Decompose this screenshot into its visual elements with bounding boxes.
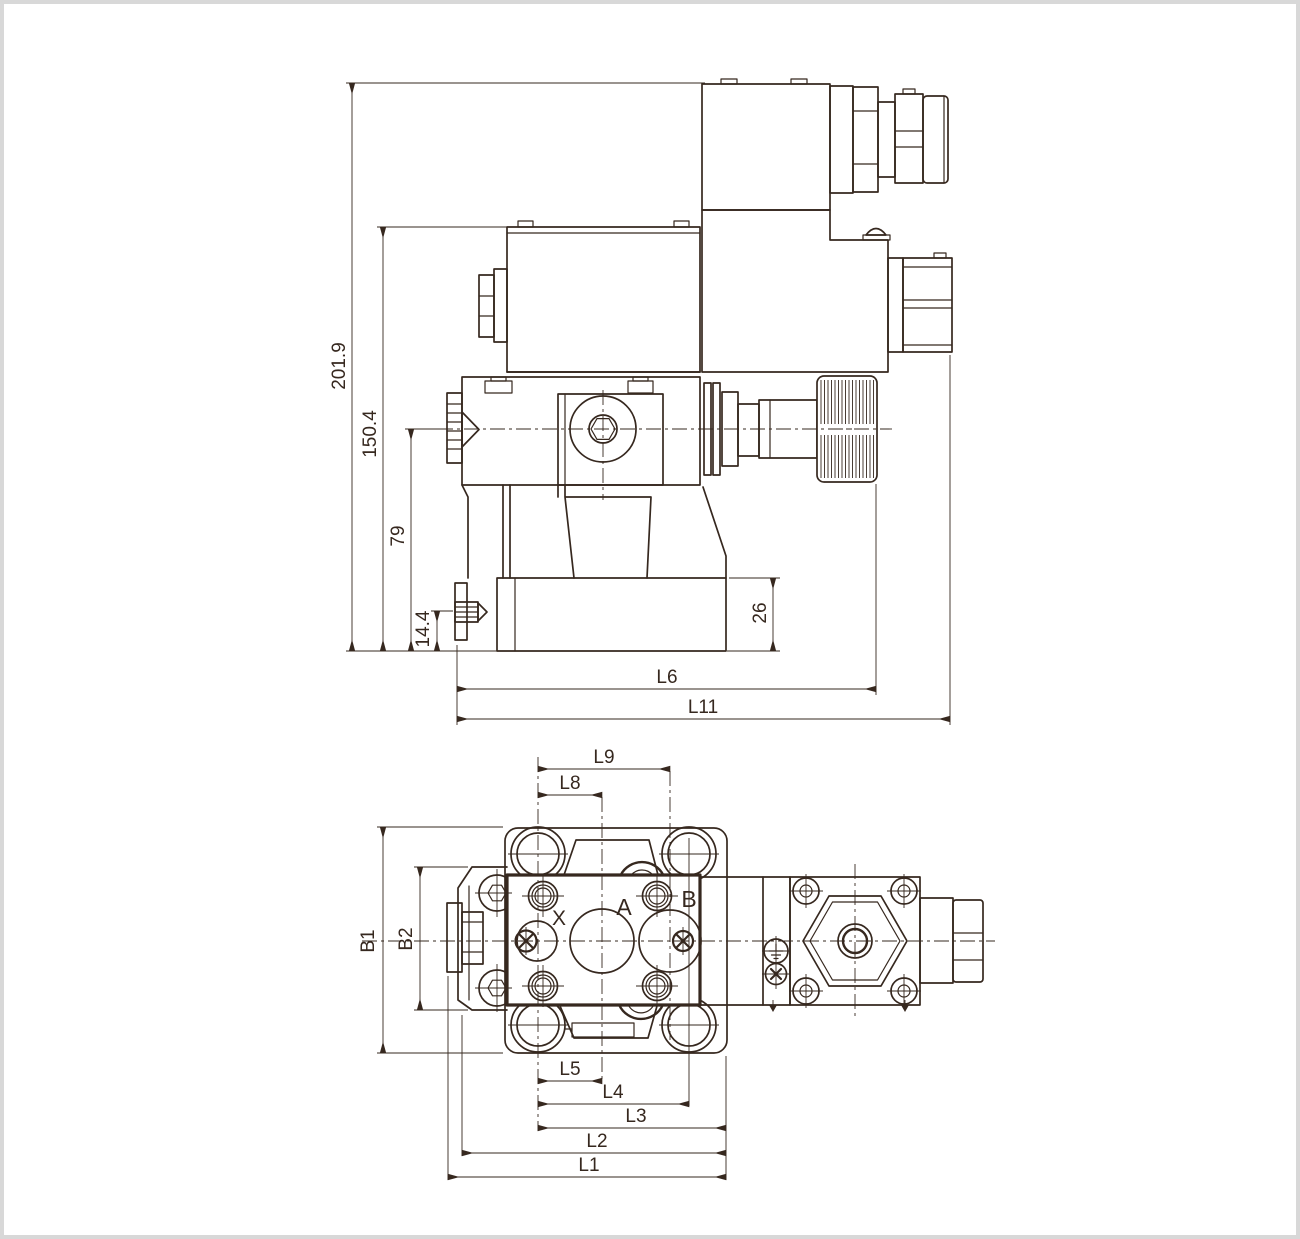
dim-l5: L5 bbox=[559, 1059, 580, 1080]
drawing-page: 201.9 150.4 79 14.4 26 L6 L11 bbox=[0, 0, 1300, 1239]
dim-l11: L11 bbox=[688, 697, 718, 718]
left-solenoid bbox=[479, 221, 700, 372]
valve-technical-drawing: 201.9 150.4 79 14.4 26 L6 L11 bbox=[4, 4, 1296, 1235]
plan-solenoid bbox=[700, 877, 983, 1012]
dim-centerline-height: 79 bbox=[388, 525, 409, 546]
plan-view: X A B L9 L8 B1 bbox=[358, 747, 995, 1180]
cable-gland bbox=[830, 86, 948, 193]
side-view: 201.9 150.4 79 14.4 26 L6 L11 bbox=[329, 79, 952, 725]
dim-l3: L3 bbox=[625, 1106, 646, 1127]
dim-overall-height: 201.9 bbox=[329, 342, 350, 390]
port-a-label: A bbox=[616, 894, 632, 920]
dim-base-height: 26 bbox=[750, 602, 771, 623]
dim-b1: B1 bbox=[358, 929, 379, 952]
side-connector-2 bbox=[888, 253, 952, 352]
center-socket-screw bbox=[558, 394, 663, 485]
right-coil-body bbox=[702, 79, 952, 372]
valve-body bbox=[447, 372, 817, 485]
dim-l4: L4 bbox=[602, 1082, 624, 1103]
dim-l1: L1 bbox=[578, 1155, 599, 1176]
dim-l9: L9 bbox=[593, 747, 614, 768]
dim-l6: L6 bbox=[656, 667, 677, 688]
dim-l2: L2 bbox=[586, 1131, 607, 1152]
mounting-face: X A B bbox=[507, 862, 701, 1019]
side-port-stud bbox=[447, 393, 479, 463]
dim-coil-top-height: 150.4 bbox=[360, 410, 381, 458]
port-x-label: X bbox=[552, 907, 566, 930]
base-block bbox=[455, 485, 726, 651]
dim-b2: B2 bbox=[396, 927, 417, 950]
dim-l8: L8 bbox=[559, 773, 580, 794]
top-connector-block bbox=[702, 79, 948, 210]
dim-drain-plug-height: 14.4 bbox=[413, 610, 434, 647]
